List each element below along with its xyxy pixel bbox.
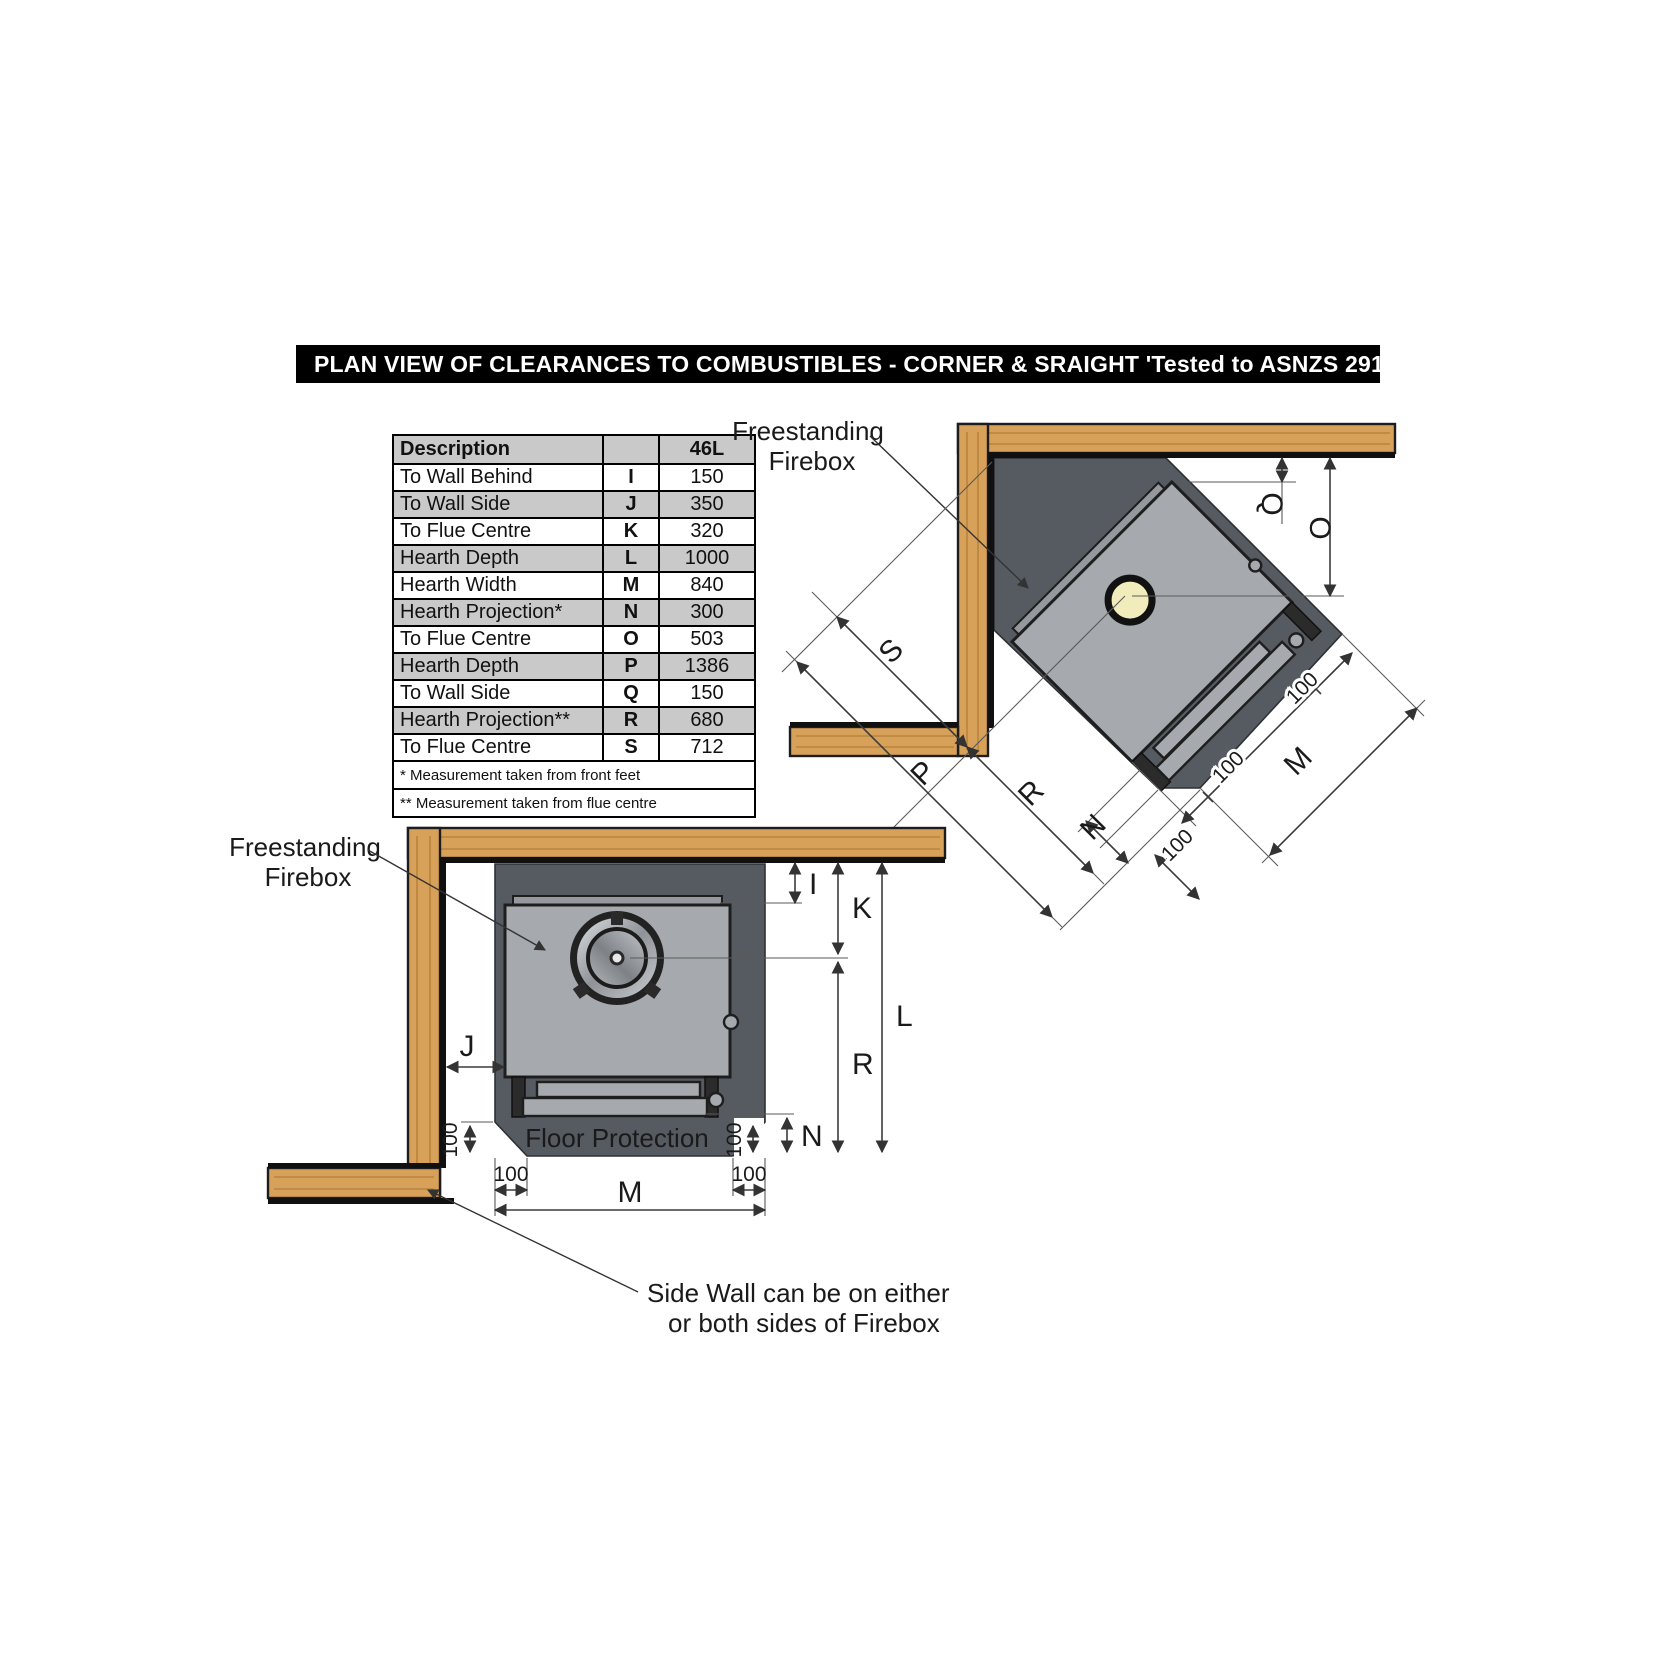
corner-firebox-label-line1: Freestanding	[732, 416, 884, 446]
dim-label-s: S	[873, 633, 910, 670]
wall-return-bottom	[268, 1198, 454, 1204]
door-bar	[523, 1098, 707, 1116]
p-rail-lead	[786, 651, 797, 662]
dim-label-100: 100	[1157, 825, 1198, 866]
dim-label-p: P	[905, 755, 942, 792]
door-handle	[709, 1093, 723, 1107]
wall-top-face	[990, 452, 1395, 458]
wall-return-face	[268, 1163, 440, 1168]
dim-label-n: N	[801, 1120, 823, 1153]
straight-firebox-label-line1: Freestanding	[229, 832, 381, 862]
flue-centre-dot	[611, 952, 623, 964]
straight-diagram: Floor Protection Freestanding Firebox	[229, 828, 950, 1338]
wall-top	[408, 828, 945, 858]
side-wall-note-line2: or both sides of Firebox	[668, 1308, 940, 1338]
m-rail-lead	[1262, 855, 1270, 863]
wall-side-face	[988, 452, 994, 728]
corner-m-dim-line	[1270, 708, 1417, 855]
straight-firebox-label-line2: Firebox	[265, 862, 352, 892]
dim-label-o: O	[1303, 516, 1336, 539]
r-dim-line	[967, 747, 1093, 873]
wall-return	[790, 727, 958, 756]
dim-label-m: M	[618, 1176, 643, 1209]
side-wall-leader	[428, 1190, 638, 1292]
floor-protection-label: Floor Protection	[525, 1123, 709, 1153]
wall-side	[408, 828, 440, 1198]
side-wall-note-line1: Side Wall can be on either	[647, 1278, 950, 1308]
p-rail-tail	[1052, 917, 1062, 927]
dim-label-i: I	[809, 868, 817, 901]
dim-label-100: 100	[493, 1163, 528, 1186]
dim-label-k: K	[852, 892, 872, 925]
dim-label-r: R	[1012, 774, 1051, 813]
dim-label-r: R	[852, 1048, 874, 1081]
dim-label-100: 100	[439, 1122, 462, 1157]
dim-label-100: 100	[731, 1163, 766, 1186]
dim-label-j: J	[460, 1030, 475, 1063]
flue-notch	[611, 912, 623, 925]
dim-label-100: 100	[723, 1122, 746, 1157]
m-rail-tail	[1417, 700, 1425, 708]
dim-label-l: L	[896, 1000, 913, 1033]
wall-top	[958, 424, 1395, 453]
corner-firebox-label-line2: Firebox	[769, 446, 856, 476]
wall-side	[958, 424, 988, 756]
wall-return-face	[790, 722, 958, 727]
dim-label-m: M	[1278, 741, 1319, 782]
dim-label-q: Q	[1255, 492, 1288, 515]
diagram-canvas: Freestanding Firebox Q O	[0, 0, 1676, 1676]
door-bar	[537, 1082, 700, 1097]
s-rail-lead	[812, 592, 837, 617]
wall-side-face	[440, 857, 446, 1168]
r-rail-tail	[1093, 873, 1104, 884]
wall-return	[268, 1168, 440, 1198]
page: PLAN VIEW OF CLEARANCES TO COMBUSTIBLES …	[0, 0, 1676, 1676]
wall-top-face	[443, 857, 945, 863]
side-knob	[724, 1015, 738, 1029]
